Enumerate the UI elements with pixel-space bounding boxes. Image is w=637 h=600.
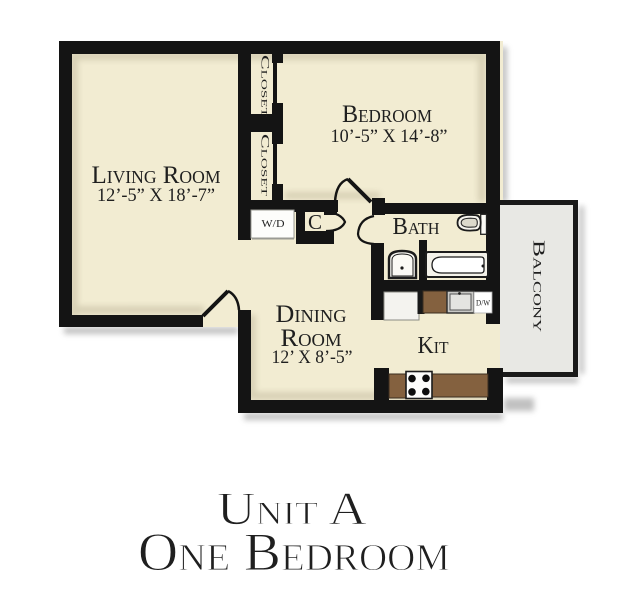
svg-text:Balcony: Balcony bbox=[530, 240, 549, 332]
svg-text:One Bedroom: One Bedroom bbox=[138, 522, 450, 582]
svg-text:Bath: Bath bbox=[393, 214, 440, 240]
svg-text:Kit: Kit bbox=[418, 332, 450, 359]
svg-text:Bedroom: Bedroom bbox=[342, 99, 432, 128]
svg-text:D/W: D/W bbox=[476, 298, 490, 308]
svg-text:Closet: Closet bbox=[259, 55, 271, 117]
svg-text:10’-5” X 14’-8”: 10’-5” X 14’-8” bbox=[331, 126, 448, 147]
svg-text:C: C bbox=[308, 210, 322, 234]
svg-text:12’ X 8’-5”: 12’ X 8’-5” bbox=[272, 347, 353, 368]
svg-text:Closet: Closet bbox=[259, 134, 271, 196]
svg-text:W/D: W/D bbox=[262, 219, 285, 230]
svg-text:12’-5” X 18’-7”: 12’-5” X 18’-7” bbox=[97, 185, 215, 206]
